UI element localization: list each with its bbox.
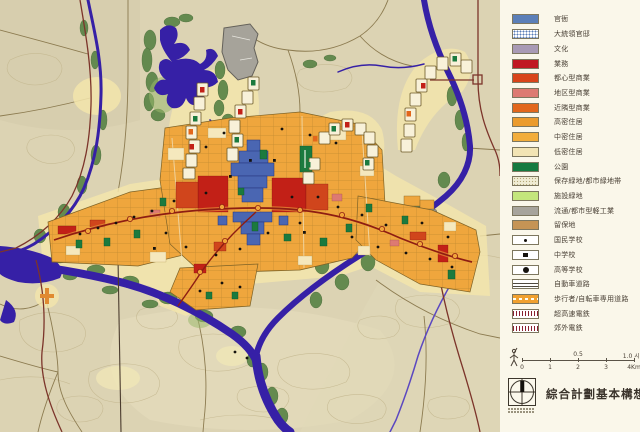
- scale-time-label: 1.0 시간: [623, 351, 640, 360]
- scale-distance-label: 1: [548, 364, 552, 371]
- legend-item: 低密住居: [512, 144, 638, 159]
- legend-label: 高密住居: [554, 117, 583, 127]
- map-canvas: [0, 0, 500, 432]
- legend-item: 近隣型商業: [512, 100, 638, 115]
- swatch-preserved-greenbelt: [512, 176, 539, 186]
- scale-line: 0.5 1.0 시간 0 1 2 3 4Km: [522, 360, 634, 361]
- swatch-district-commercial: [512, 88, 539, 98]
- legend-label: 中学校: [554, 250, 576, 260]
- legend-item: 文化: [512, 41, 638, 56]
- swatch-culture: [512, 44, 539, 54]
- swatch-suburban-rail: [512, 323, 539, 333]
- legend-label: 都心型商業: [554, 73, 590, 83]
- swatch-neighborhood-commercial: [512, 103, 539, 113]
- swatch-presidential-residence: [512, 29, 539, 39]
- scale-distance-label: 4Km: [627, 364, 640, 371]
- legend-item: 自動車道路: [512, 277, 638, 292]
- swatch-middle-school: [512, 250, 539, 260]
- scanned-master-plan-page: 官衙 大統領官邸 文化 業務 都心型商業 地区型商業 近隣型商業 高密住居 中密…: [0, 0, 640, 432]
- legend-label: 歩行者/自転車専用道路: [554, 294, 629, 304]
- legend-label: 中密住居: [554, 132, 583, 142]
- legend-item: 公園: [512, 159, 638, 174]
- master-plan-map: [0, 0, 500, 432]
- legend-item: 業務: [512, 56, 638, 71]
- swatch-elementary-school: [512, 235, 539, 245]
- scale-time-label: 0.5: [573, 351, 583, 358]
- swatch-motor-road: [512, 279, 539, 289]
- legend-label: 国民学校: [554, 235, 583, 245]
- scale-distance-label: 2: [576, 364, 580, 371]
- legend-item: 国民学校: [512, 233, 638, 248]
- scale-distance-label: 0: [520, 364, 524, 371]
- legend-item: 中学校: [512, 248, 638, 263]
- swatch-light-industry: [512, 206, 539, 216]
- legend-label: 留保地: [554, 220, 576, 230]
- swatch-pedestrian-bicycle-road: [512, 294, 539, 304]
- legend-item: 保存緑地/都市緑地帯: [512, 174, 638, 189]
- legend-item: 超高速電鉄: [512, 306, 638, 321]
- legend-item: 地区型商業: [512, 86, 638, 101]
- legend-label: 高等学校: [554, 265, 583, 275]
- scale-bar: 0.5 1.0 시간 0 1 2 3 4Km: [508, 346, 638, 376]
- swatch-city-center-commercial: [512, 73, 539, 83]
- legend-label: 超高速電鉄: [554, 309, 590, 319]
- plan-logo-icon: [508, 378, 536, 406]
- swatch-park: [512, 162, 539, 172]
- swatch-business: [512, 59, 539, 69]
- map-title: 綜合計劃基本構想: [546, 386, 640, 402]
- legend-item: 歩行者/自転車専用道路: [512, 292, 638, 307]
- legend-label: 自動車道路: [554, 279, 590, 289]
- legend-panel: 官衙 大統領官邸 文化 業務 都心型商業 地区型商業 近隣型商業 高密住居 中密…: [500, 0, 640, 432]
- legend-label: 大統領官邸: [554, 29, 590, 39]
- legend-label: 低密住居: [554, 147, 583, 157]
- swatch-high-density-residential: [512, 117, 539, 127]
- legend: 官衙 大統領官邸 文化 業務 都心型商業 地区型商業 近隣型商業 高密住居 中密…: [512, 12, 638, 336]
- legend-label: 公園: [554, 162, 568, 172]
- legend-item: 官衙: [512, 12, 638, 27]
- legend-item: 中密住居: [512, 130, 638, 145]
- legend-label: 地区型商業: [554, 88, 590, 98]
- legend-item: 施設緑地: [512, 189, 638, 204]
- legend-label: 流通/都市型軽工業: [554, 206, 614, 216]
- scale-distance-label: 3: [604, 364, 608, 371]
- swatch-highspeed-rail: [512, 309, 539, 319]
- swatch-medium-density-residential: [512, 132, 539, 142]
- legend-item: 高密住居: [512, 115, 638, 130]
- legend-label: 業務: [554, 59, 568, 69]
- legend-label: 官衙: [554, 14, 568, 24]
- swatch-low-density-residential: [512, 147, 539, 157]
- legend-label: 施設緑地: [554, 191, 583, 201]
- logo-caption-lines: [508, 408, 536, 413]
- legend-item: 郊外電鉄: [512, 321, 638, 336]
- legend-item: 大統領官邸: [512, 27, 638, 42]
- legend-label: 文化: [554, 44, 568, 54]
- legend-item: 留保地: [512, 218, 638, 233]
- swatch-facility-green: [512, 191, 539, 201]
- swatch-government-office: [512, 14, 539, 24]
- swatch-high-school: [512, 265, 539, 275]
- swatch-reserved-land: [512, 220, 539, 230]
- title-block: 綜合計劃基本構想: [508, 378, 640, 413]
- north-arrow-icon: [508, 346, 520, 370]
- legend-label: 郊外電鉄: [554, 323, 583, 333]
- legend-item: 高等学校: [512, 262, 638, 277]
- legend-label: 近隣型商業: [554, 103, 590, 113]
- legend-item: 流通/都市型軽工業: [512, 203, 638, 218]
- legend-item: 都心型商業: [512, 71, 638, 86]
- legend-label: 保存緑地/都市緑地帯: [554, 176, 621, 186]
